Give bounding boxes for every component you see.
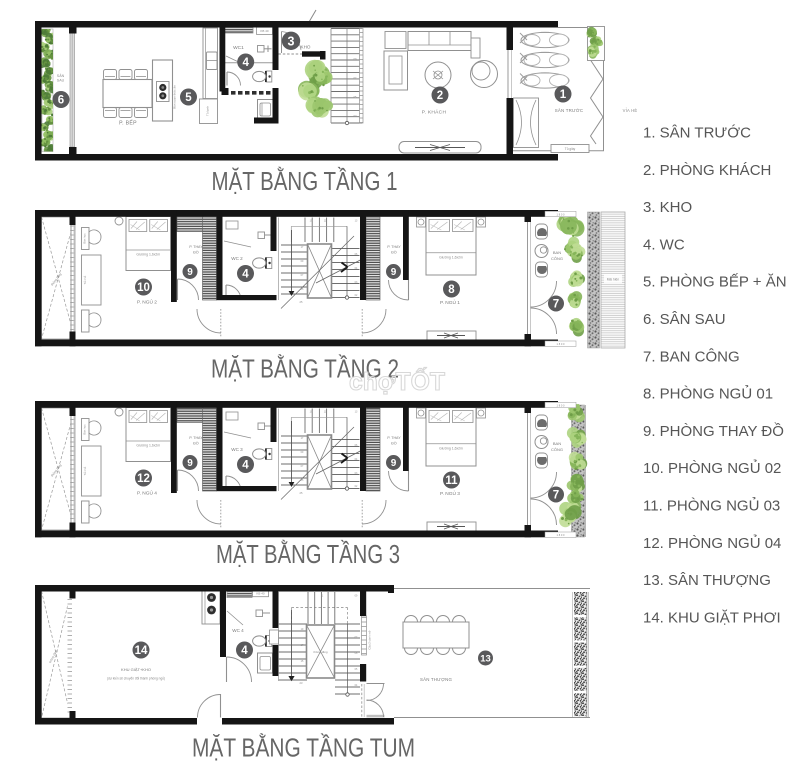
svg-text:Giường 1,6x2m: Giường 1,6x2m — [439, 447, 463, 451]
svg-text:10. PHÒNG NGỦ 02: 10. PHÒNG NGỦ 02 — [643, 459, 781, 477]
svg-text:ĐỒ: ĐỒ — [193, 250, 199, 255]
svg-text:9: 9 — [187, 267, 193, 278]
svg-text:1 8 0 0: 1 8 0 0 — [557, 342, 565, 346]
svg-text:Tủ nhỏ: Tủ nhỏ — [83, 466, 87, 475]
svg-text:ĐỒ: ĐỒ — [391, 441, 397, 446]
svg-text:Giường 1,6x2m: Giường 1,6x2m — [439, 256, 463, 260]
svg-text:WC 2: WC 2 — [231, 256, 243, 261]
svg-text:9: 9 — [187, 458, 193, 469]
svg-text:Cầu 2 cánh mở: Cầu 2 cánh mở — [368, 630, 372, 649]
svg-text:P. THAY: P. THAY — [189, 245, 203, 249]
svg-text:5: 5 — [185, 92, 192, 104]
svg-text:11: 11 — [445, 475, 458, 487]
svg-text:4: 4 — [242, 460, 249, 472]
svg-text:MẶT BẰNG TẦNG 1: MẶT BẰNG TẦNG 1 — [212, 166, 398, 196]
svg-text:14: 14 — [135, 645, 148, 657]
svg-text:ĐỒ: ĐỒ — [193, 441, 199, 446]
svg-text:thông tầng: thông tầng — [313, 650, 328, 654]
svg-text:KB 40: KB 40 — [260, 29, 269, 33]
svg-text:12: 12 — [137, 473, 150, 485]
svg-text:Bàn soạn thức ăn: Bàn soạn thức ăn — [173, 85, 177, 109]
svg-text:14. KHU GIẶT PHƠI: 14. KHU GIẶT PHƠI — [643, 609, 781, 626]
svg-text:MẶT BẰNG TẦNG TUM: MẶT BẰNG TẦNG TUM — [192, 733, 415, 763]
svg-text:7. BAN CÔNG: 7. BAN CÔNG — [643, 348, 740, 365]
svg-text:13. SÂN THƯỢNG: 13. SÂN THƯỢNG — [643, 572, 771, 589]
svg-text:10: 10 — [137, 282, 150, 294]
svg-text:ĐỒ: ĐỒ — [391, 250, 397, 255]
svg-text:9. PHÒNG THAY ĐỒ: 9. PHÒNG THAY ĐỒ — [643, 422, 784, 440]
svg-text:P. THAY: P. THAY — [387, 245, 401, 249]
svg-text:9: 9 — [391, 458, 397, 469]
svg-text:P. BẾP: P. BẾP — [119, 120, 137, 127]
svg-text:11. PHÒNG NGỦ 03: 11. PHÒNG NGỦ 03 — [643, 497, 780, 515]
svg-text:WC 4: WC 4 — [232, 628, 244, 633]
svg-text:6. SÂN SAU: 6. SÂN SAU — [643, 311, 726, 328]
svg-text:P. NGỦ 2: P. NGỦ 2 — [137, 299, 157, 306]
svg-text:7: 7 — [553, 490, 559, 502]
svg-text:SAU: SAU — [57, 79, 65, 83]
svg-text:9: 9 — [391, 267, 397, 278]
svg-text:P. KHÁCH: P. KHÁCH — [422, 109, 447, 116]
svg-text:7: 7 — [553, 299, 559, 311]
svg-text:VỈA HÈ: VỈA HÈ — [623, 108, 638, 113]
svg-text:P. THAY: P. THAY — [387, 436, 401, 440]
svg-text:(dự kiến sẽ chuyển đổi thành p: (dự kiến sẽ chuyển đổi thành phòng ngủ) — [107, 677, 165, 681]
svg-text:2. PHÒNG KHÁCH: 2. PHÒNG KHÁCH — [643, 162, 771, 179]
svg-text:CÔNG: CÔNG — [551, 256, 563, 261]
svg-text:8: 8 — [448, 284, 455, 296]
svg-text:3. KHO: 3. KHO — [643, 199, 692, 216]
svg-text:KHU GIẶT+KHO: KHU GIẶT+KHO — [121, 667, 151, 672]
svg-text:Tủ nhỏ: Tủ nhỏ — [83, 275, 87, 284]
svg-text:1 8 0 0: 1 8 0 0 — [557, 213, 565, 217]
svg-text:4: 4 — [242, 269, 249, 281]
svg-text:12. PHÒNG NGỦ 04: 12. PHÒNG NGỦ 04 — [643, 534, 781, 552]
svg-text:P. NGỦ 3: P. NGỦ 3 — [440, 490, 460, 497]
svg-text:Tủ lạnh: Tủ lạnh — [206, 106, 210, 116]
svg-text:SÂN: SÂN — [57, 74, 65, 78]
svg-text:Bàn học: Bàn học — [83, 424, 87, 435]
svg-text:Bàn học: Bàn học — [83, 233, 87, 244]
svg-text:13: 13 — [480, 653, 491, 664]
svg-text:SÂN THƯỢNG: SÂN THƯỢNG — [420, 677, 453, 682]
svg-text:BAN: BAN — [553, 250, 561, 255]
svg-text:BAN: BAN — [553, 441, 561, 446]
svg-text:4: 4 — [242, 57, 249, 69]
svg-text:4. WC: 4. WC — [643, 236, 685, 253]
svg-text:MẶT BẰNG TẦNG 3: MẶT BẰNG TẦNG 3 — [216, 539, 400, 569]
svg-text:6: 6 — [58, 95, 64, 107]
svg-text:P. NGỦ 4: P. NGỦ 4 — [137, 490, 157, 497]
svg-text:WC1: WC1 — [233, 45, 244, 51]
svg-text:3: 3 — [288, 34, 295, 48]
svg-text:P. NGỦ 1: P. NGỦ 1 — [440, 299, 460, 306]
svg-text:2: 2 — [437, 90, 443, 102]
svg-text:4: 4 — [241, 645, 248, 657]
svg-text:5. PHÒNG BẾP + ĂN: 5. PHÒNG BẾP + ĂN — [643, 274, 787, 291]
svg-text:SÂN TRƯỚC: SÂN TRƯỚC — [555, 108, 584, 113]
svg-text:1: 1 — [560, 89, 567, 101]
svg-text:WC 3: WC 3 — [231, 447, 243, 452]
svg-text:Giường 1,6x2m: Giường 1,6x2m — [136, 252, 160, 256]
svg-text:Tủ giầy: Tủ giầy — [565, 147, 576, 151]
svg-text:1. SÂN TRƯỚC: 1. SÂN TRƯỚC — [643, 125, 751, 142]
svg-text:Giường 1,6x2m: Giường 1,6x2m — [136, 443, 160, 447]
svg-text:chợTỐT: chợTỐT — [349, 366, 445, 396]
svg-text:1 8 0 0: 1 8 0 0 — [557, 533, 565, 537]
svg-text:1 8 0 0: 1 8 0 0 — [557, 404, 565, 408]
svg-text:8. PHÒNG NGỦ 01: 8. PHÒNG NGỦ 01 — [643, 385, 773, 403]
svg-text:KB 40: KB 40 — [256, 591, 265, 595]
svg-text:CÔNG: CÔNG — [551, 447, 563, 452]
svg-text:P. THAY: P. THAY — [189, 436, 203, 440]
svg-text:Mái hiên: Mái hiên — [607, 278, 620, 282]
svg-text:KHO: KHO — [301, 45, 311, 50]
